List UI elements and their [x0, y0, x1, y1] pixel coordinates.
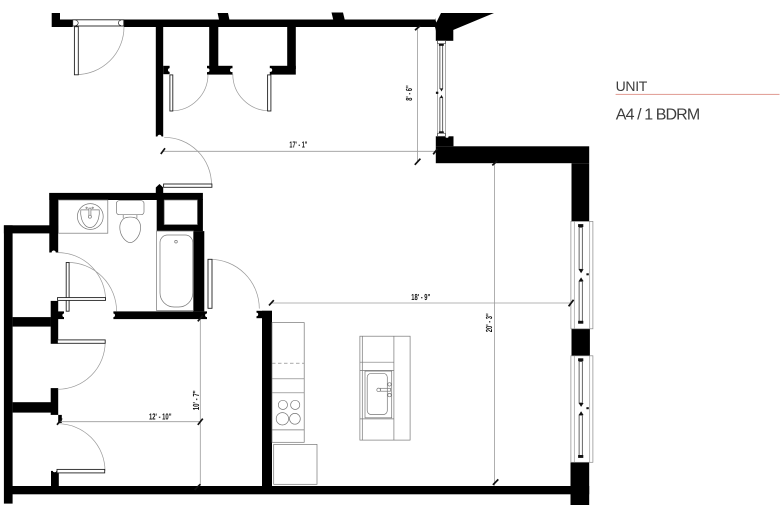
- svg-text:10' - 7": 10' - 7": [191, 390, 201, 410]
- svg-text:18' - 9": 18' - 9": [411, 292, 430, 302]
- svg-text:UNIT: UNIT: [616, 78, 648, 94]
- svg-text:8' - 6": 8' - 6": [404, 85, 414, 101]
- svg-text:12' - 10": 12' - 10": [149, 412, 172, 422]
- svg-text:17' - 1": 17' - 1": [289, 140, 307, 150]
- svg-text:20' - 3": 20' - 3": [484, 313, 494, 332]
- svg-text:A4 / 1 BDRM: A4 / 1 BDRM: [616, 106, 700, 123]
